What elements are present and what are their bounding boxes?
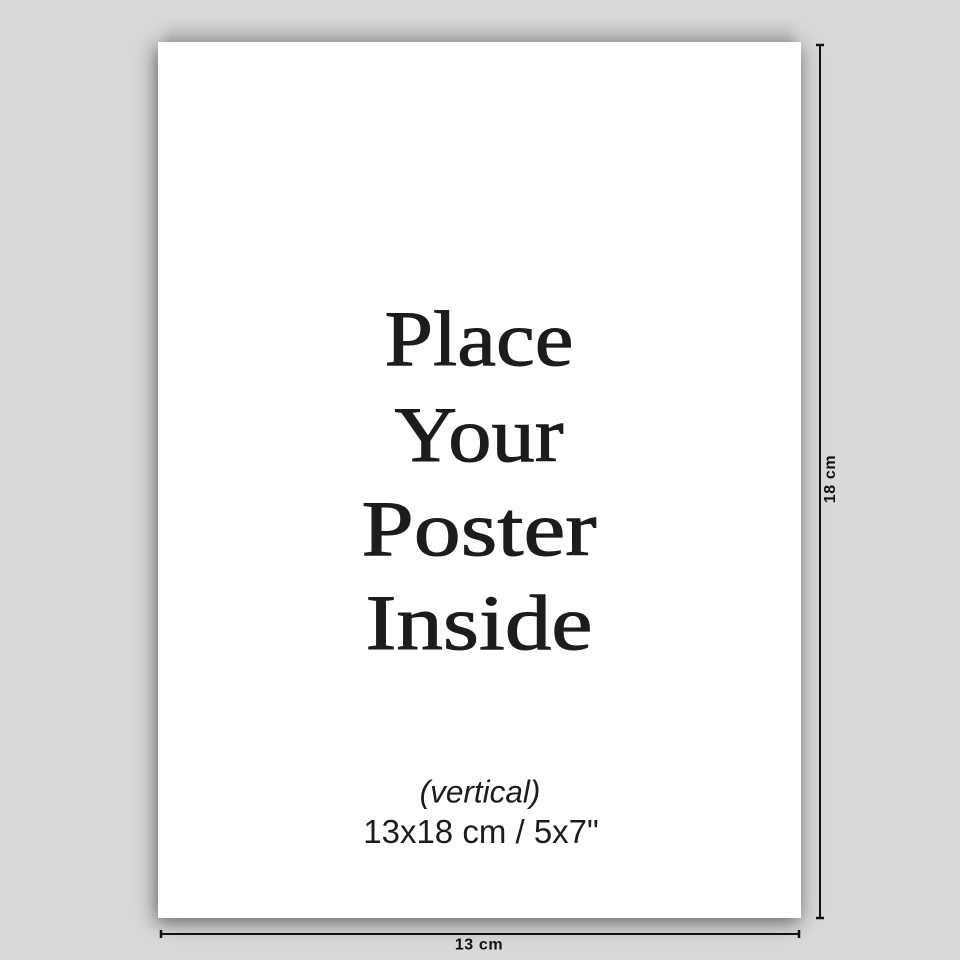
svg-text:18 cm: 18 cm <box>822 455 839 503</box>
svg-text:Poster: Poster <box>362 485 597 572</box>
svg-text:13x18 cm / 5x7": 13x18 cm / 5x7" <box>363 813 599 850</box>
svg-text:Inside: Inside <box>366 579 593 666</box>
svg-text:13 cm: 13 cm <box>455 937 503 954</box>
svg-text:Place: Place <box>385 295 574 382</box>
svg-text:(vertical): (vertical) <box>420 774 541 810</box>
svg-text:Your: Your <box>395 391 564 478</box>
